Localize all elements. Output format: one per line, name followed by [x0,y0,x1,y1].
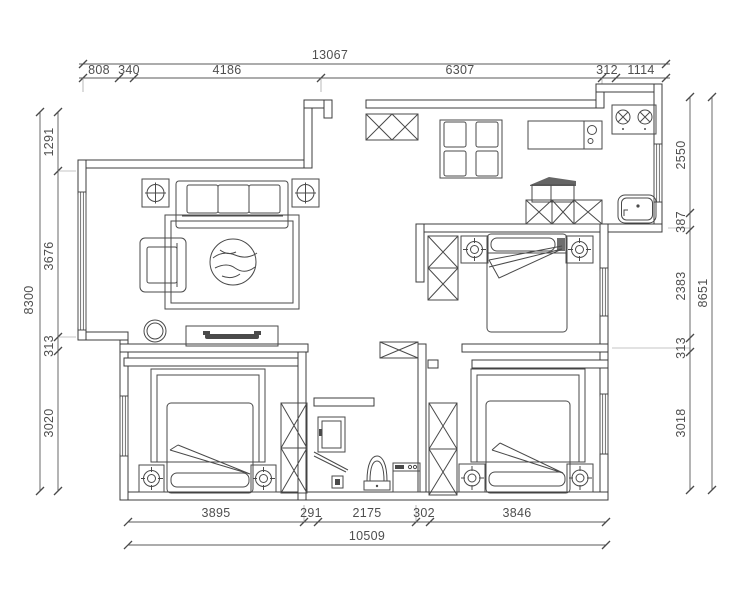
dim-top-seg-4: 312 [596,63,618,77]
bed-bottom-right [471,369,585,493]
dim-left-seg-2: 313 [42,335,56,357]
dimension-left: 8300 1291 3676 313 3020 [22,108,76,495]
nightstand-bl-right [251,465,276,492]
shower-door [314,417,348,472]
dimension-bottom: 3895 291 2175 302 3846 10509 [124,505,610,549]
dim-right-seg-2: 2383 [674,271,688,300]
dim-right-seg-3: 313 [674,337,688,359]
hall-cabinet [380,342,418,358]
window-kitchen-right [654,144,662,202]
nightstand-br-right [567,464,593,492]
kitchen-sink [618,195,656,223]
nightstand-br-left [459,464,485,492]
floor-plan-drawing: 13067 808 340 4186 6307 312 1114 8300 12… [0,0,740,600]
entry-shoe-cabinet [366,114,418,140]
tv-stand [186,326,278,346]
nightstand-mid-left [461,236,488,263]
small-appliance [530,177,576,202]
dim-top-overall: 13067 [312,48,348,62]
gas-stove [612,105,656,134]
dim-left-overall: 8300 [22,285,36,314]
dimension-right: 2550 387 2383 313 3018 8651 [612,93,716,494]
rug [165,215,299,309]
armchair [140,238,186,292]
nightstand-bl-left [139,465,164,492]
dim-top-seg-1: 340 [118,63,140,77]
dim-top-seg-2: 4186 [212,63,241,77]
window-bedroom-mid-right [600,268,608,316]
plant-stool [144,320,166,342]
kitchen-base-cabinets [526,200,602,224]
kitchen-counter-top [528,121,602,149]
dimension-top: 13067 808 340 4186 6307 312 1114 [79,48,670,92]
dim-top-seg-3: 6307 [445,63,474,77]
dining-table [440,120,502,178]
dim-right-seg-1: 387 [674,211,688,233]
dim-top-seg-0: 808 [88,63,110,77]
dim-top-seg-5: 1114 [627,63,654,77]
wardrobe-bottom-right [429,403,457,495]
side-table-left [142,179,169,207]
dim-right-seg-0: 2550 [674,140,688,169]
window-bedroom-bottom-right [600,394,608,454]
washing-machine [393,463,420,492]
dim-bottom-overall: 10509 [349,529,385,543]
nightstand-mid-right [566,236,593,263]
dim-bottom-seg-3: 302 [413,506,435,520]
dim-right-overall: 8651 [696,278,710,307]
bed-bottom-left [151,369,265,493]
bed-mid-right [487,234,567,332]
dim-right-seg-4: 3018 [674,408,688,437]
dim-bottom-seg-1: 291 [300,506,322,520]
floor-drain [332,476,343,488]
rug-medallion [210,239,257,285]
floor-plan-canvas: 13067 808 340 4186 6307 312 1114 8300 12… [0,0,740,600]
toilet [364,456,390,490]
window-living-left [78,192,86,330]
dim-left-seg-1: 3676 [42,241,56,270]
window-bedroom-left [120,396,128,456]
side-table-right [292,179,319,207]
dim-bottom-seg-0: 3895 [201,506,230,520]
dim-left-seg-3: 3020 [42,408,56,437]
dim-bottom-seg-4: 3846 [502,506,531,520]
dim-left-seg-0: 1291 [42,127,56,156]
dim-bottom-seg-2: 2175 [352,506,381,520]
wardrobe-bedroom-mid [428,236,458,300]
